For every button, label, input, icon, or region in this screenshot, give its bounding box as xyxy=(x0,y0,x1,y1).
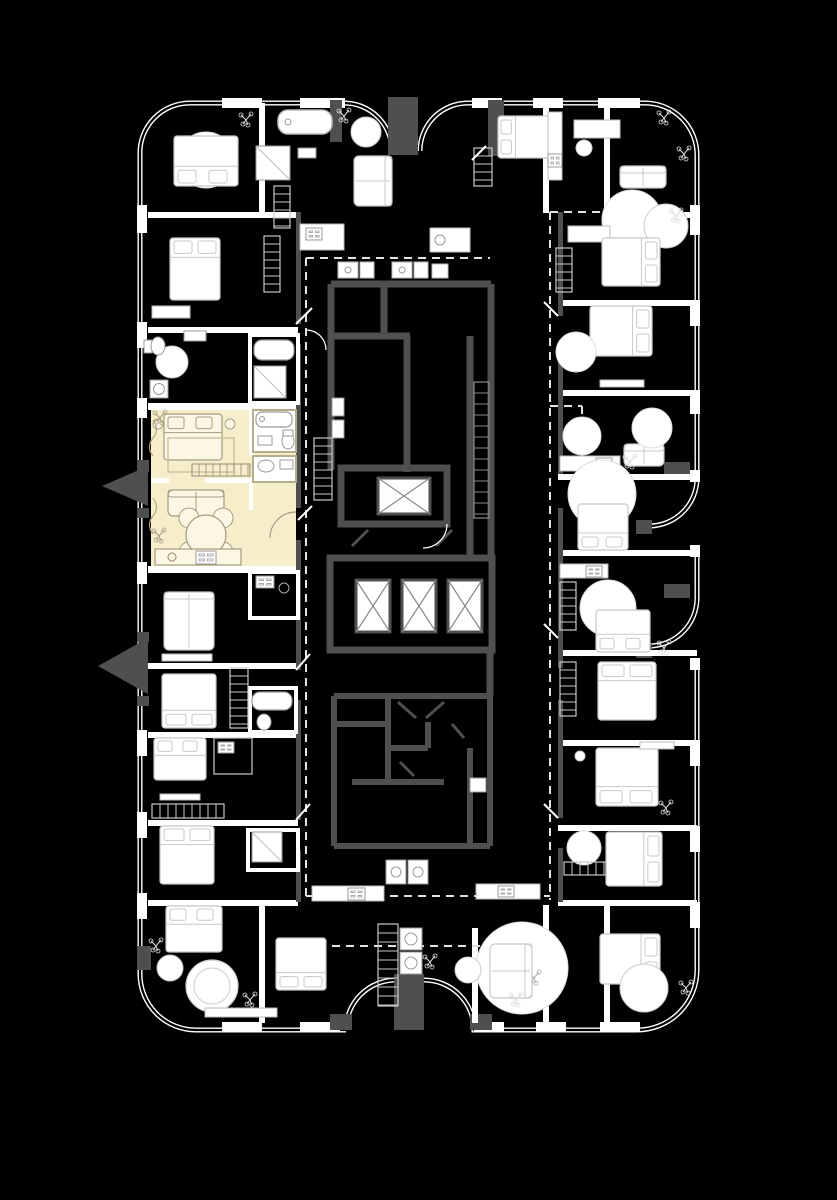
partition-wall xyxy=(558,390,697,396)
wall-pier xyxy=(137,562,147,584)
bed xyxy=(276,938,326,990)
bed xyxy=(596,748,658,806)
shaft-box xyxy=(332,398,344,416)
core-pier xyxy=(137,696,149,706)
floor-plan-page xyxy=(0,0,837,1200)
rug xyxy=(556,332,596,372)
nightstand xyxy=(225,419,235,429)
kitchen-counter xyxy=(548,112,562,180)
bed xyxy=(160,826,214,884)
service-box xyxy=(360,262,374,278)
bed xyxy=(170,238,220,300)
partition-wall xyxy=(558,300,697,306)
bed xyxy=(596,610,650,652)
bed xyxy=(602,238,660,286)
desk xyxy=(574,120,620,138)
service-box xyxy=(414,262,428,278)
armchair xyxy=(351,117,381,147)
partition-wall xyxy=(148,820,298,826)
stove-icon xyxy=(548,154,562,167)
partition-wall xyxy=(148,663,298,669)
bed xyxy=(590,306,652,356)
bench xyxy=(640,742,674,749)
rug xyxy=(563,417,601,455)
armchair xyxy=(620,964,668,1012)
stove-icon xyxy=(306,228,322,240)
shaft-box xyxy=(470,778,486,792)
wall-pier xyxy=(536,1022,566,1032)
partition-wall xyxy=(259,905,265,1023)
sofa xyxy=(490,944,532,998)
service-box xyxy=(432,264,448,278)
partition-wall xyxy=(148,212,298,218)
bed xyxy=(174,136,238,186)
elevator-icon xyxy=(448,580,482,632)
kitchen-counter xyxy=(430,228,470,252)
elevator-icon xyxy=(356,580,390,632)
sofa xyxy=(164,592,214,650)
room-wall xyxy=(151,478,169,483)
shaft-box xyxy=(332,420,344,438)
corridor-wall xyxy=(558,848,563,902)
wall-pier xyxy=(137,812,147,838)
toilet xyxy=(257,714,271,730)
partition-wall xyxy=(558,740,697,746)
wall-pier xyxy=(222,98,262,108)
service-box xyxy=(392,262,412,278)
wall-pier xyxy=(137,205,147,233)
bed xyxy=(498,116,550,158)
armchair xyxy=(157,955,183,981)
wall-pier xyxy=(137,730,147,756)
partition-wall xyxy=(148,327,298,333)
wall-pier xyxy=(137,893,147,919)
service-box xyxy=(338,262,358,278)
core-pier xyxy=(388,97,418,155)
core-pier xyxy=(137,946,151,970)
stove-icon xyxy=(256,576,274,588)
bed xyxy=(598,662,656,720)
room-wall xyxy=(249,482,253,510)
core-pier xyxy=(137,508,149,518)
core-pier xyxy=(137,632,149,642)
core-pier xyxy=(636,520,652,534)
bed xyxy=(166,906,222,952)
rug xyxy=(567,831,601,865)
partition-wall xyxy=(148,900,298,906)
bench xyxy=(205,1008,277,1017)
bench xyxy=(160,794,200,800)
sink xyxy=(298,148,316,158)
tv-bench xyxy=(162,654,212,661)
room-wall xyxy=(205,478,253,483)
stove-icon xyxy=(586,566,602,577)
bed xyxy=(162,674,216,728)
bathtub xyxy=(254,340,294,360)
washing-machine xyxy=(150,380,168,398)
rug xyxy=(632,408,672,448)
bench xyxy=(600,380,644,387)
bed xyxy=(164,414,222,460)
sink xyxy=(280,460,293,469)
wall-pier xyxy=(600,1022,640,1032)
core-pier xyxy=(664,584,690,598)
core-pier xyxy=(137,460,149,472)
stove-icon xyxy=(196,551,216,564)
partition-wall xyxy=(558,825,697,831)
wall-pier xyxy=(222,1022,262,1032)
sofa xyxy=(354,156,392,206)
washing-machine xyxy=(400,928,422,950)
partition-wall xyxy=(558,900,697,906)
bathtub xyxy=(256,412,292,427)
toilet xyxy=(258,460,274,472)
toilet xyxy=(151,337,165,355)
nightstand xyxy=(575,751,585,761)
bed xyxy=(154,738,206,780)
partition-wall xyxy=(558,550,697,556)
bathtub xyxy=(252,692,292,710)
coffee-table xyxy=(455,957,481,983)
elevator-icon xyxy=(378,478,430,514)
core-pier xyxy=(330,1014,352,1030)
washing-machine xyxy=(400,952,422,974)
sink xyxy=(386,860,406,884)
floor-plan-svg xyxy=(0,0,837,1200)
sink xyxy=(258,436,272,445)
toilet xyxy=(283,430,293,436)
wall-pier xyxy=(690,658,700,670)
wall-pier xyxy=(137,398,147,418)
bathtub xyxy=(278,110,332,134)
stove-icon xyxy=(218,742,234,753)
dresser xyxy=(152,306,190,318)
chair xyxy=(576,140,592,156)
sofa xyxy=(620,166,666,188)
stove-icon xyxy=(498,886,514,897)
sink xyxy=(184,331,206,341)
corridor-wall xyxy=(558,700,563,818)
stove-icon xyxy=(348,888,365,900)
elevator-icon xyxy=(402,580,436,632)
bed xyxy=(606,832,662,886)
sink xyxy=(408,860,428,884)
wall-pier xyxy=(690,205,700,235)
core-pier xyxy=(664,462,690,476)
bed xyxy=(578,504,628,550)
